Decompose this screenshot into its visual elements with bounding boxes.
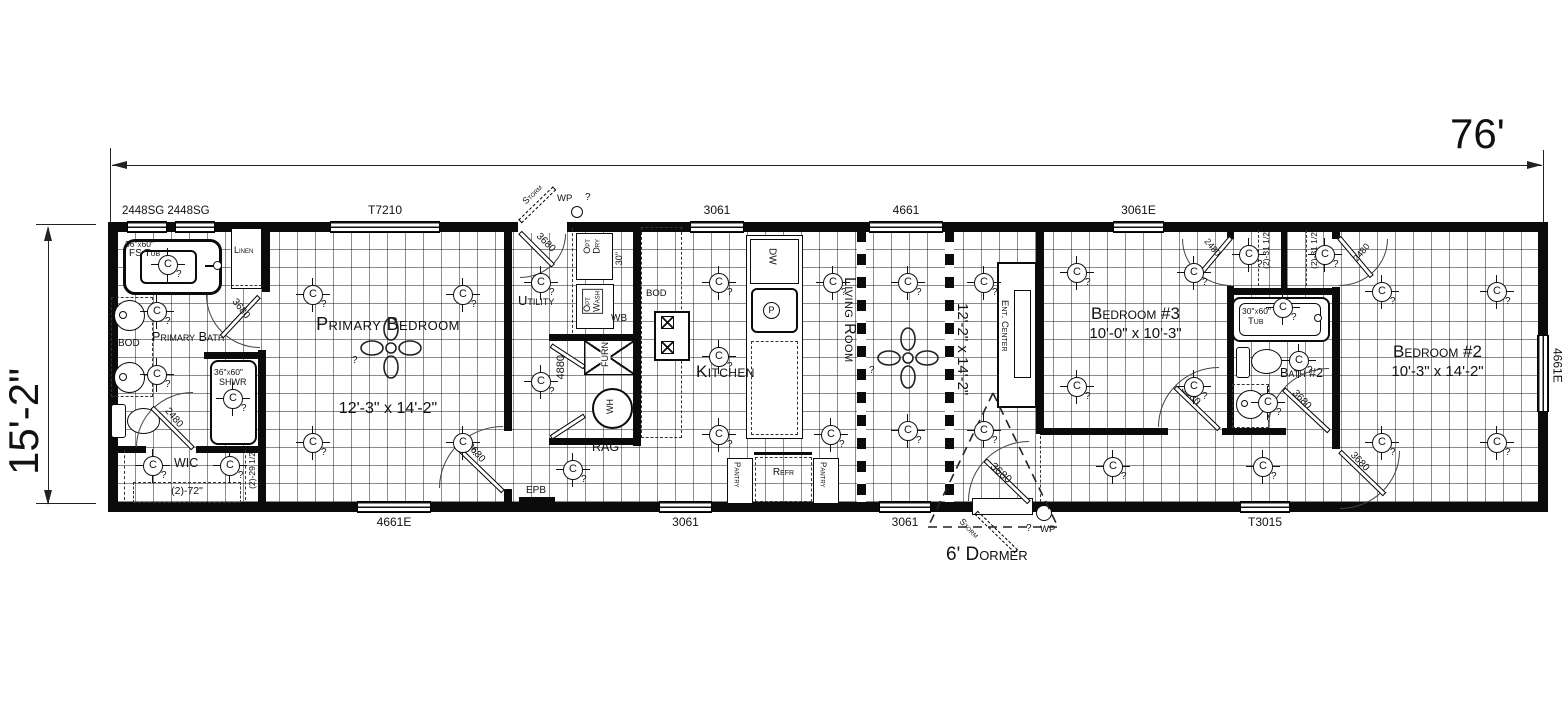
light-circle: C — [709, 347, 729, 367]
light-circle: C — [974, 421, 994, 441]
overall-height-label: 15'-2" — [2, 368, 47, 475]
closet-shelf-label: (2)-29 1/2 — [108, 452, 117, 489]
floor-plan-canvas: 76' 15'-2" 2448SG 2448SG T7210 3061 4661… — [0, 0, 1568, 702]
window-label: 2448SG 2448SG — [122, 205, 210, 217]
unknown-mark: ? — [321, 447, 327, 458]
burner — [661, 341, 674, 354]
water-heater-label: WH — [606, 399, 616, 414]
unknown-mark: ? — [1202, 391, 1208, 402]
window-label: 3061 — [659, 516, 712, 529]
light-circle: C — [1315, 245, 1335, 265]
window-label: 4661E — [1551, 348, 1564, 383]
light-circle: C — [709, 273, 729, 293]
pantry-label: Pantry — [732, 462, 740, 488]
room-size-bedroom3: 10'-0" x 10'-3" — [1058, 326, 1213, 342]
unknown-mark: ? — [1121, 471, 1127, 482]
light-circle: C — [147, 302, 167, 322]
ceiling-light-symbol: C? — [1232, 238, 1266, 272]
wall-primary-bedroom-right-stub — [504, 489, 512, 506]
light-circle: C — [453, 433, 473, 453]
optional-dryer-label: Opt Dry — [583, 239, 602, 254]
light-circle: C — [1239, 245, 1259, 265]
wp-receptacle-icon — [571, 206, 583, 218]
unknown-mark: ? — [165, 379, 171, 390]
unknown-mark: ? — [916, 287, 922, 298]
window-3061e-top — [1113, 221, 1164, 233]
window-2448sg-a — [127, 221, 167, 233]
width-dimension-line — [112, 165, 1542, 166]
unknown-mark: ? — [727, 439, 733, 450]
light-circle: C — [223, 389, 243, 409]
unknown-mark: ? — [1505, 447, 1511, 458]
unknown-mark: ? — [241, 403, 247, 414]
window-3061-top — [690, 221, 744, 233]
room-label-bedroom2: Bedroom #2 — [1360, 343, 1515, 361]
dishwasher-label: DW — [766, 248, 777, 265]
unknown-mark: ? — [1085, 277, 1091, 288]
ceiling-light-symbol: C? — [446, 426, 480, 460]
ceiling-fan: ? — [877, 327, 939, 394]
unknown-mark: ? — [352, 355, 358, 366]
unknown-mark: ? — [1291, 312, 1297, 323]
light-circle: C — [220, 456, 240, 476]
light-circle: C — [1067, 263, 1087, 283]
fan-icon — [877, 327, 939, 389]
unknown-mark: ? — [1505, 296, 1511, 307]
light-circle: C — [1487, 282, 1507, 302]
column-line — [857, 231, 866, 502]
electrical-panel-box — [519, 497, 555, 504]
sink-drain — [1241, 400, 1248, 407]
ceiling-light-symbol: C? — [556, 453, 590, 487]
window-4661e-right — [1537, 335, 1549, 412]
wall-shower-wic-right — [258, 350, 266, 510]
window-label: 4661 — [869, 204, 943, 217]
dormer-label: 6' Dormer — [946, 545, 1028, 565]
entertainment-center-label: Ent. Center — [999, 300, 1009, 352]
closet-shelf-label: (2)-29 1/2 — [248, 452, 257, 489]
ceiling-light-symbol: C? — [891, 266, 925, 300]
window-t7210 — [330, 221, 440, 233]
fan-icon — [360, 317, 422, 379]
toilet-tank — [1236, 347, 1250, 378]
room-label-bedroom3: Bedroom #3 — [1058, 305, 1213, 323]
light-circle: C — [974, 273, 994, 293]
linen-label: Linen — [234, 246, 253, 256]
wd-closet-front — [572, 228, 573, 333]
bath2-tub-label: Tub — [1248, 317, 1264, 327]
unknown-mark: ? — [581, 474, 587, 485]
ceiling-light-symbol: C? — [216, 382, 250, 416]
sink-drain — [119, 373, 127, 381]
unknown-mark: ? — [1271, 471, 1277, 482]
light-circle: C — [1372, 433, 1392, 453]
unknown-mark: ? — [549, 287, 555, 298]
light-circle: C — [143, 456, 163, 476]
ceiling-light-symbol: C? — [446, 278, 480, 312]
epb-label: EPB — [526, 486, 546, 497]
ceiling-light-symbol: C? — [1246, 450, 1280, 484]
light-circle: C — [1184, 263, 1204, 283]
ceiling-light-symbol: C? — [140, 295, 174, 329]
light-circle: C — [709, 425, 729, 445]
window-label: 3061E — [1113, 204, 1164, 217]
unknown-mark: ? — [321, 299, 327, 310]
unknown-mark: ? — [161, 470, 167, 481]
refrigerator-label: Refr — [755, 468, 812, 479]
toilet-bowl — [1251, 349, 1282, 374]
wall-primary-bedroom-right — [504, 228, 512, 431]
closet-shelf-label: (2)-72" — [133, 486, 241, 497]
ceiling-light-symbol: C? — [1480, 275, 1514, 309]
optional-washer-label: Opt Wash — [582, 289, 603, 314]
linen-closet — [231, 228, 262, 289]
rag-label: RAG — [592, 441, 619, 454]
unknown-mark: ? — [471, 299, 477, 310]
closet-rod — [124, 450, 125, 500]
window-label: T3015 — [1240, 516, 1290, 529]
unknown-mark: ? — [1307, 365, 1313, 376]
room-size-bedroom2: 10'-3" x 14'-2" — [1360, 364, 1515, 380]
island-counter — [751, 341, 798, 435]
furnace-label: FURN — [601, 342, 611, 367]
wall-shower-top — [204, 352, 260, 359]
light-circle: C — [1258, 393, 1278, 413]
window-label: 3061 — [690, 204, 744, 217]
ceiling-fan: ? — [360, 317, 422, 384]
ceiling-light-symbol: C? — [1365, 275, 1399, 309]
light-circle: C — [1487, 433, 1507, 453]
ceiling-light-symbol: C? — [967, 414, 1001, 448]
light-circle: C — [303, 433, 323, 453]
window-label: T7210 — [330, 204, 440, 217]
light-circle: C — [821, 425, 841, 445]
unknown-mark: ? — [176, 269, 182, 280]
light-circle: C — [1289, 351, 1309, 371]
unknown-mark: ? — [841, 287, 847, 298]
tub-faucet — [1314, 314, 1322, 322]
wp-label: WP — [557, 194, 572, 204]
ceiling-light-symbol: C? — [1251, 386, 1285, 420]
burner — [661, 316, 674, 329]
ceiling-light-symbol: C? — [702, 418, 736, 452]
ceiling-light-symbol: C? — [1308, 238, 1342, 272]
dryer-width-label: 30" — [615, 252, 625, 265]
ceiling-light-symbol: C? — [296, 426, 330, 460]
unknown-mark: ? — [238, 470, 244, 481]
ceiling-light-symbol: C? — [702, 266, 736, 300]
unknown-mark: ? — [1333, 259, 1339, 270]
ceiling-light-symbol: C? — [213, 449, 247, 483]
dim-arrow-up — [44, 226, 52, 241]
extension-line — [110, 148, 111, 222]
light-circle: C — [531, 273, 551, 293]
wb-label: WB — [611, 314, 627, 325]
window-t3015-bottom — [1240, 501, 1290, 513]
unknown-mark: ? — [839, 439, 845, 450]
ceiling-light-symbol: C? — [1282, 344, 1316, 378]
overall-width-label: 76' — [1450, 112, 1505, 157]
pantry-label: Pantry — [818, 462, 826, 488]
light-circle: C — [898, 421, 918, 441]
room-size-living-room: 12'-2" x 14'-2" — [954, 303, 970, 395]
bod-label: BOD — [646, 289, 667, 299]
toilet-tank — [111, 404, 126, 438]
light-circle: C — [453, 285, 473, 305]
linen-shelf — [231, 285, 262, 286]
sink-drain — [119, 311, 127, 319]
ceiling-light-symbol: C? — [1060, 370, 1094, 404]
ceiling-light-symbol: C? — [524, 266, 558, 300]
ceiling-light-symbol: C? — [140, 358, 174, 392]
light-circle: C — [1067, 377, 1087, 397]
counter-line — [754, 452, 812, 455]
light-circle: C — [898, 273, 918, 293]
room-label-wic: WIC — [174, 457, 198, 470]
window-4661e-bottom — [357, 501, 431, 513]
window-3061-bottom-kitchen — [659, 501, 712, 513]
ceiling-light-symbol: C? — [816, 266, 850, 300]
unknown-mark: ? — [1390, 296, 1396, 307]
ceiling-light-symbol: C? — [1266, 291, 1300, 325]
ceiling-light-symbol: C? — [151, 248, 185, 282]
ceiling-light-symbol: C? — [524, 365, 558, 399]
light-circle: C — [147, 365, 167, 385]
wall-linen-right — [262, 226, 270, 292]
ceiling-light-symbol: C? — [1060, 256, 1094, 290]
shower-size-label: 36"x60" — [214, 368, 243, 377]
ceiling-light-symbol: C? — [136, 449, 170, 483]
window-label: 4661E — [357, 516, 431, 529]
light-circle: C — [1184, 377, 1204, 397]
unknown-mark: ? — [1276, 407, 1282, 418]
bod-label: BOD — [118, 339, 140, 350]
unknown-mark: ? — [992, 287, 998, 298]
ceiling-light-symbol: C? — [967, 266, 1001, 300]
room-label-primary-bath: Primary Bath — [152, 331, 224, 344]
room-size-primary-bedroom: 12'-3" x 14'-2" — [300, 401, 476, 418]
unknown-mark: ? — [727, 287, 733, 298]
wall-bedroom2-left — [1332, 287, 1340, 449]
light-circle: C — [1253, 457, 1273, 477]
extension-line — [36, 224, 96, 225]
unknown-mark: ? — [727, 361, 733, 372]
ceiling-light-symbol: C? — [814, 418, 848, 452]
unknown-mark: ? — [1390, 447, 1396, 458]
height-dimension-line — [48, 228, 49, 504]
ceiling-light-symbol: C? — [1177, 256, 1211, 290]
unknown-mark: ? — [869, 365, 875, 376]
ceiling-light-symbol: C? — [702, 340, 736, 374]
window-2448sg-b — [175, 221, 215, 233]
ceiling-light-symbol: C? — [1365, 426, 1399, 460]
light-circle: C — [563, 460, 583, 480]
unknown-mark: ? — [1257, 259, 1263, 270]
dormer-outline — [900, 385, 1090, 535]
unknown-mark: ? — [1202, 277, 1208, 288]
unknown-mark: ? — [992, 435, 998, 446]
ceiling-light-symbol: C? — [1480, 426, 1514, 460]
unknown-mark: ? — [1085, 391, 1091, 402]
window-4661-top — [869, 221, 943, 233]
unknown-mark: ? — [549, 386, 555, 397]
dim-arrow-right — [1527, 161, 1542, 169]
unknown-mark: ? — [916, 435, 922, 446]
light-circle: C — [1273, 298, 1293, 318]
dim-arrow-left — [112, 161, 127, 169]
unknown-mark: ? — [585, 193, 591, 204]
tub-faucet — [213, 261, 222, 270]
extension-line — [36, 503, 96, 504]
closet-rod — [1306, 230, 1307, 286]
light-circle: C — [303, 285, 323, 305]
ceiling-light-symbol: C? — [1177, 370, 1211, 404]
light-circle: C — [1103, 457, 1123, 477]
light-circle: C — [531, 372, 551, 392]
wall-closet-divider — [1281, 226, 1287, 290]
refrigerator — [755, 457, 812, 502]
light-circle: C — [1372, 282, 1392, 302]
ceiling-light-symbol: C? — [1096, 450, 1130, 484]
ceiling-light-symbol: C? — [891, 414, 925, 448]
ceiling-light-symbol: C? — [296, 278, 330, 312]
sink-disposal: P — [763, 302, 780, 319]
unknown-mark: ? — [471, 447, 477, 458]
light-circle: C — [158, 255, 178, 275]
light-circle: C — [823, 273, 843, 293]
entertainment-center-tv — [1014, 290, 1031, 378]
unknown-mark: ? — [165, 316, 171, 327]
